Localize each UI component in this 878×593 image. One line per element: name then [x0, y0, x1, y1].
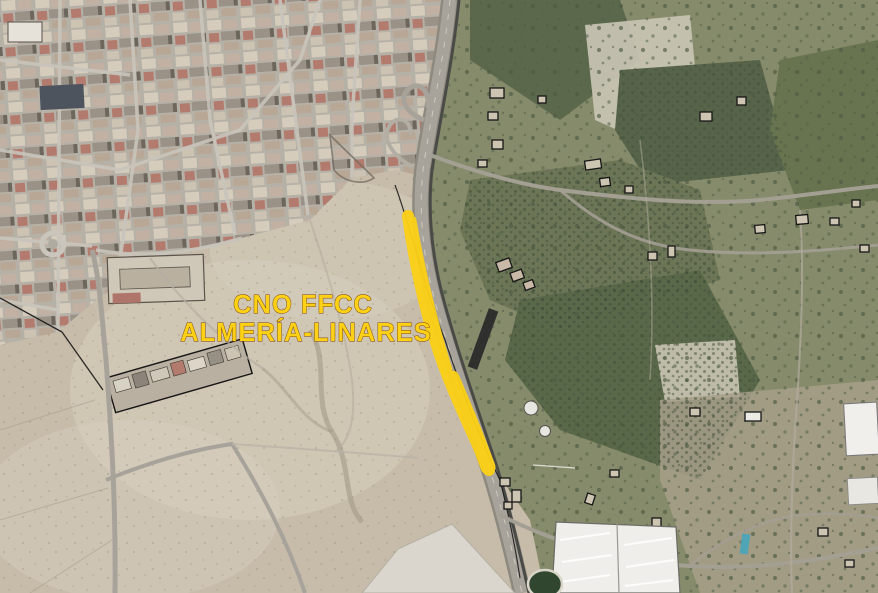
map-label-line1: CNO FFCC [233, 291, 373, 319]
greenhouse-right-edge [844, 402, 878, 456]
school-complex [107, 254, 205, 303]
dark-roof-building [39, 84, 84, 110]
map-label-line2: ALMERÍA-LINARES [180, 318, 432, 347]
aerial-map-canvas[interactable]: CNO FFCC ALMERÍA-LINARES [0, 0, 878, 593]
large-white-building [8, 22, 42, 42]
irrigation-pond [528, 570, 562, 593]
screenshot-root: CNO FFCC ALMERÍA-LINARES [0, 0, 878, 593]
